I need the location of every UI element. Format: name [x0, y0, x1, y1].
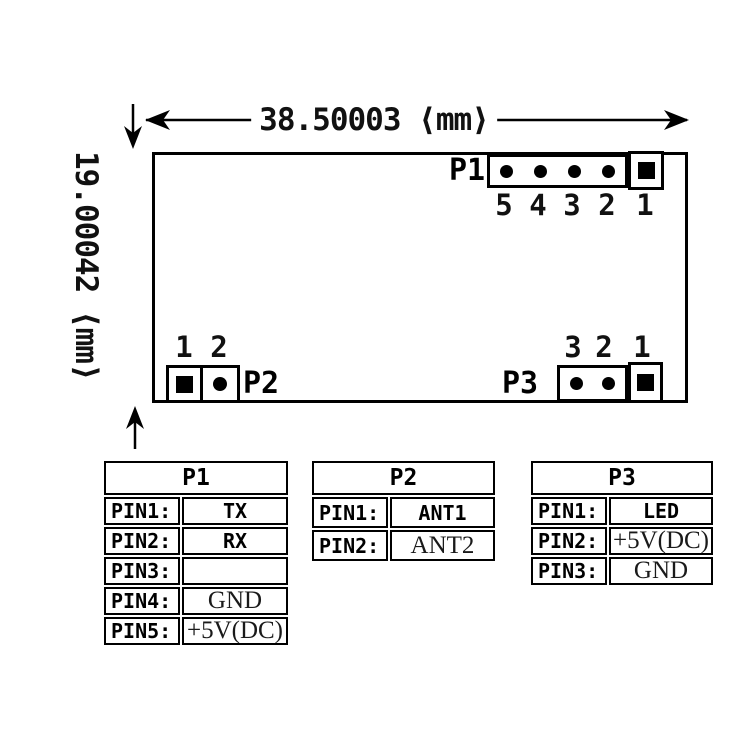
pin-label-cell: PIN5:	[104, 617, 180, 645]
p1-pin-number: 4	[529, 188, 546, 222]
p2-pin2-box	[200, 365, 240, 403]
table-p2-title: P2	[312, 461, 495, 495]
table-row: PIN1: TX	[104, 497, 288, 525]
p2-pin1-box	[166, 365, 203, 403]
p3-pin-number: 2	[595, 330, 612, 364]
p2-pin1-square-pad-icon	[176, 376, 193, 393]
table-p3: P3 PIN1: LED PIN2: +5V(DC) PIN3: GND	[531, 461, 713, 585]
pin-label-cell: PIN1:	[104, 497, 180, 525]
table-p3-title: P3	[531, 461, 713, 495]
width-dimension-label: 38.50003 ⟨mm⟩	[251, 102, 497, 138]
table-p1: P1 PIN1: TX PIN2: RX PIN3: PIN4: GND PIN…	[104, 461, 288, 645]
p2-pin2-round-pad-icon	[213, 377, 227, 391]
table-row: PIN3: GND	[531, 557, 713, 585]
p1-pin-number: 2	[598, 188, 615, 222]
p3-connector-label: P3	[502, 366, 538, 401]
p3-pin1-box	[628, 362, 663, 403]
p3-pin-number: 3	[564, 330, 581, 364]
pcb-dimension-diagram: 38.50003 ⟨mm⟩ 19.00042 ⟨mm⟩ P1 5 4 3 2 1…	[0, 0, 750, 750]
pin-value-cell: LED	[609, 497, 713, 525]
p1-pin1-square-pad-icon	[638, 162, 655, 179]
table-row: PIN3:	[104, 557, 288, 585]
p1-pin-number: 1	[636, 188, 653, 222]
p2-connector-label: P2	[243, 366, 279, 401]
pin-label-cell: PIN3:	[104, 557, 180, 585]
table-row: PIN4: GND	[104, 587, 288, 615]
pin-value-cell	[182, 557, 288, 585]
table-row: PIN1: ANT1	[312, 497, 495, 528]
pin-label-cell: PIN1:	[312, 497, 388, 528]
pin-value-cell: +5V(DC)	[182, 617, 288, 645]
pin-value-cell: RX	[182, 527, 288, 555]
table-row: PIN1: LED	[531, 497, 713, 525]
p3-pin2-round-pad-icon	[602, 377, 615, 390]
table-row: PIN2: +5V(DC)	[531, 527, 713, 555]
p2-pin-number: 2	[210, 330, 227, 364]
pin-value-cell: +5V(DC)	[609, 527, 713, 555]
p3-pin1-square-pad-icon	[637, 374, 654, 391]
table-p1-title: P1	[104, 461, 288, 495]
pin-value-cell: ANT2	[390, 530, 495, 561]
p3-pin3-round-pad-icon	[570, 377, 583, 390]
pin-label-cell: PIN3:	[531, 557, 607, 585]
pin-label-cell: PIN2:	[312, 530, 388, 561]
table-p2: P2 PIN1: ANT1 PIN2: ANT2	[312, 461, 495, 561]
p2-pin-number: 1	[175, 330, 192, 364]
pin-value-cell: GND	[609, 557, 713, 585]
p1-pin4-round-pad-icon	[534, 165, 547, 178]
p3-pin-number: 1	[633, 330, 650, 364]
pin-label-cell: PIN2:	[104, 527, 180, 555]
pin-value-cell: GND	[182, 587, 288, 615]
pin-label-cell: PIN4:	[104, 587, 180, 615]
table-row: PIN2: RX	[104, 527, 288, 555]
p1-pin3-round-pad-icon	[568, 165, 581, 178]
pin-value-cell: TX	[182, 497, 288, 525]
table-row: PIN2: ANT2	[312, 530, 495, 561]
table-row: PIN5: +5V(DC)	[104, 617, 288, 645]
pin-value-cell: ANT1	[390, 497, 495, 528]
p1-connector-label: P1	[449, 153, 485, 188]
p1-pin1-box	[628, 151, 664, 190]
pin-label-cell: PIN1:	[531, 497, 607, 525]
height-dimension-label: 19.00042 ⟨mm⟩	[69, 149, 103, 383]
p1-pin-number: 3	[563, 188, 580, 222]
pin-label-cell: PIN2:	[531, 527, 607, 555]
p1-pin-number: 5	[495, 188, 512, 222]
p1-pin5-round-pad-icon	[500, 165, 513, 178]
p3-pin-box	[557, 365, 628, 402]
p1-pin-box	[487, 154, 628, 188]
p1-pin2-round-pad-icon	[602, 165, 615, 178]
